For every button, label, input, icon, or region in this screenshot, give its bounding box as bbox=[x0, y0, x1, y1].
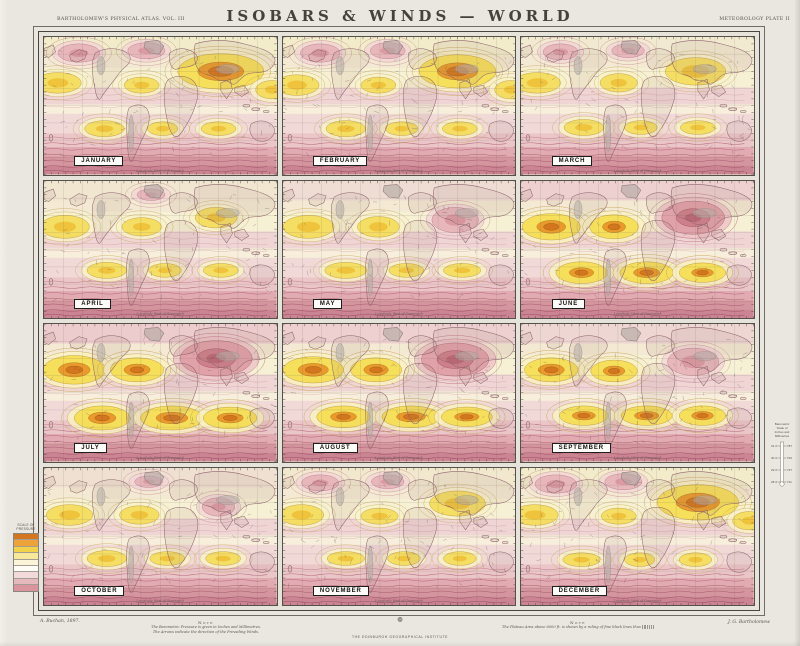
map-cell-january: JANUARYLongitude West of Greenwich bbox=[43, 36, 278, 176]
month-label: AUGUST bbox=[313, 443, 358, 453]
legend-title: SCALE OF PRESSURE bbox=[13, 523, 39, 531]
plate-frame: JANUARYLongitude West of Greenwich FEBRU… bbox=[38, 31, 760, 611]
plate-number-label: METEOROLOGY PLATE II bbox=[719, 17, 790, 22]
maps-grid: JANUARYLongitude West of Greenwich FEBRU… bbox=[39, 32, 759, 610]
author-credit: A. Buchan, 1897. bbox=[40, 619, 80, 624]
world-isobar-map bbox=[44, 181, 277, 319]
svg-text:31·0: 31·0 bbox=[771, 444, 777, 448]
map-footer-note: Longitude West of Greenwich bbox=[375, 169, 423, 173]
month-label: FEBRUARY bbox=[313, 156, 367, 166]
barometer-scale-title: BarometricScale ofInches andMillimetres bbox=[767, 423, 797, 439]
map-cell-august: AUGUSTLongitude West of Greenwich bbox=[282, 323, 517, 463]
svg-text:762: 762 bbox=[787, 456, 792, 460]
publisher-name: THE EDINBURGH GEOGRAPHICAL INSTITUTE bbox=[352, 635, 448, 639]
svg-text:28·0: 28·0 bbox=[771, 480, 777, 484]
svg-text:711: 711 bbox=[787, 480, 792, 484]
svg-text:30·0: 30·0 bbox=[771, 456, 777, 460]
map-footer-note: Longitude West of Greenwich bbox=[136, 599, 184, 603]
map-cell-april: APRILLongitude West of Greenwich bbox=[43, 180, 278, 320]
svg-text:737: 737 bbox=[787, 468, 792, 472]
month-label: JUNE bbox=[552, 299, 586, 309]
month-label: OCTOBER bbox=[74, 586, 124, 596]
map-footer-note: Longitude West of Greenwich bbox=[614, 312, 662, 316]
map-cell-march: MARCHLongitude West of Greenwich bbox=[520, 36, 755, 176]
map-footer-note: Longitude West of Greenwich bbox=[136, 312, 184, 316]
map-footer-note: Longitude West of Greenwich bbox=[375, 599, 423, 603]
plate-title: ISOBARS & WINDS — WORLD bbox=[0, 7, 800, 25]
world-isobar-map bbox=[283, 181, 516, 319]
map-cell-july: JULYLongitude West of Greenwich bbox=[43, 323, 278, 463]
map-footer-note: Longitude West of Greenwich bbox=[614, 599, 662, 603]
svg-text:787: 787 bbox=[787, 444, 792, 448]
world-isobar-map bbox=[521, 37, 754, 175]
barometer-tube: 31·078730·076229·073728·0711 bbox=[767, 440, 797, 488]
world-isobar-map bbox=[44, 37, 277, 175]
world-isobar-map bbox=[283, 468, 516, 606]
map-cell-october: OCTOBERLongitude West of Greenwich bbox=[43, 467, 278, 607]
month-label: APRIL bbox=[74, 299, 111, 309]
month-label: MARCH bbox=[552, 156, 593, 166]
world-isobar-map bbox=[521, 468, 754, 606]
map-footer-note: Longitude West of Greenwich bbox=[136, 456, 184, 460]
cartographer-credit: J. G. Bartholomew bbox=[728, 620, 770, 625]
barometer-title-line: Millimetres bbox=[767, 435, 797, 439]
world-isobar-map bbox=[283, 37, 516, 175]
month-label: JANUARY bbox=[74, 156, 123, 166]
legend-title-line2: PRESSURE bbox=[13, 527, 39, 531]
map-cell-may: MAYLongitude West of Greenwich bbox=[282, 180, 517, 320]
month-label: NOVEMBER bbox=[313, 586, 369, 596]
world-isobar-map bbox=[283, 324, 516, 462]
map-cell-february: FEBRUARYLongitude West of Greenwich bbox=[282, 36, 517, 176]
month-label: SEPTEMBER bbox=[552, 443, 611, 453]
note-plateau: Note The Plateau Area above 6000 ft. is … bbox=[492, 620, 664, 630]
world-isobar-map bbox=[44, 468, 277, 606]
month-label: MAY bbox=[313, 299, 342, 309]
world-isobar-map bbox=[521, 324, 754, 462]
map-cell-november: NOVEMBERLongitude West of Greenwich bbox=[282, 467, 517, 607]
legend-swatches bbox=[13, 533, 39, 592]
world-isobar-map bbox=[521, 181, 754, 319]
map-cell-december: DECEMBERLongitude West of Greenwich bbox=[520, 467, 755, 607]
map-footer-note: Longitude West of Greenwich bbox=[136, 169, 184, 173]
note-line: The Arrows indicate the direction of the… bbox=[145, 630, 267, 635]
map-footer-note: Longitude West of Greenwich bbox=[614, 456, 662, 460]
note-line: The Plateau Area above 6000 ft. is shown… bbox=[492, 625, 664, 630]
pressure-scale-legend: SCALE OF PRESSURE bbox=[13, 523, 39, 592]
note-barometric: Note The Barometric Pressure is given in… bbox=[145, 620, 267, 636]
svg-text:29·0: 29·0 bbox=[771, 468, 777, 472]
publisher-imprint: ❁ THE EDINBURGH GEOGRAPHICAL INSTITUTE bbox=[345, 617, 455, 643]
hatch-ruling-sample bbox=[642, 625, 654, 629]
note-line-text: The Plateau Area above 6000 ft. is shown… bbox=[502, 625, 641, 629]
map-cell-september: SEPTEMBERLongitude West of Greenwich bbox=[520, 323, 755, 463]
map-footer-note: Longitude West of Greenwich bbox=[614, 169, 662, 173]
month-label: JULY bbox=[74, 443, 106, 453]
legend-swatch bbox=[14, 585, 38, 590]
thistle-logo-icon: ❁ bbox=[345, 617, 455, 625]
map-footer-note: Longitude West of Greenwich bbox=[375, 456, 423, 460]
barometer-scale: BarometricScale ofInches andMillimetres … bbox=[767, 423, 797, 488]
map-footer-note: Longitude West of Greenwich bbox=[375, 312, 423, 316]
world-isobar-map bbox=[44, 324, 277, 462]
month-label: DECEMBER bbox=[552, 586, 608, 596]
map-cell-june: JUNELongitude West of Greenwich bbox=[520, 180, 755, 320]
